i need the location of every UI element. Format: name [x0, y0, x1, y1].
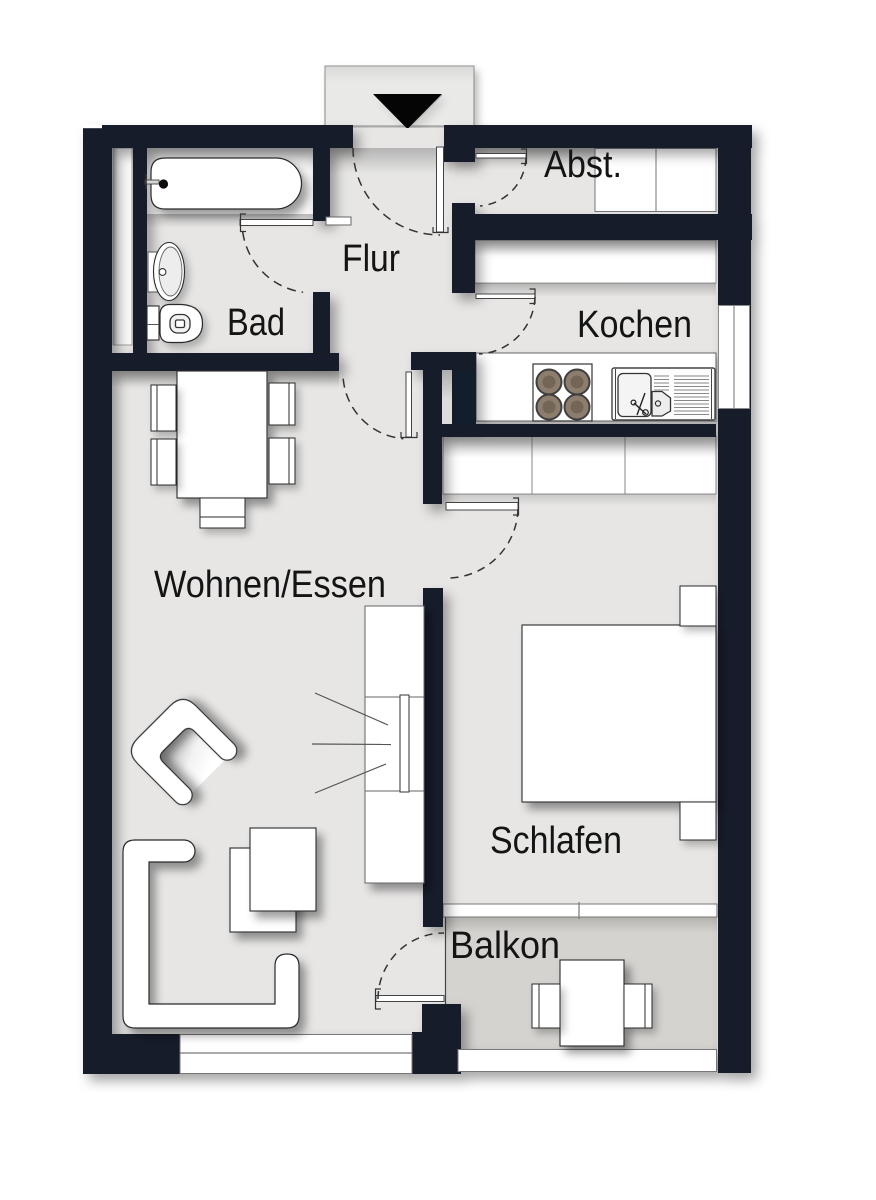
svg-text:Wohnen/Essen: Wohnen/Essen	[154, 564, 386, 606]
svg-text:Bad: Bad	[227, 302, 285, 344]
svg-text:Schlafen: Schlafen	[490, 820, 622, 862]
svg-text:Balkon: Balkon	[450, 925, 560, 967]
svg-text:Flur: Flur	[342, 238, 400, 280]
svg-text:Kochen: Kochen	[577, 304, 692, 346]
svg-text:Abst.: Abst.	[544, 144, 622, 186]
